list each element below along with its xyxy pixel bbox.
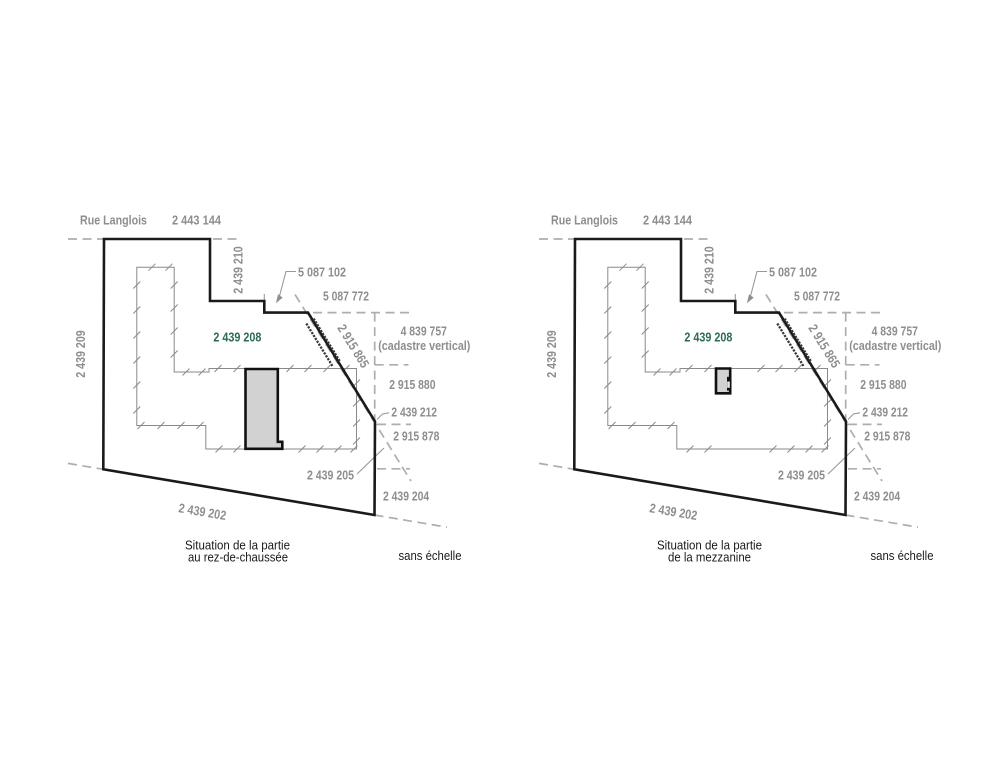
svg-text:5 087 102: 5 087 102 (298, 265, 346, 280)
svg-text:2 439 212: 2 439 212 (862, 405, 908, 420)
svg-text:au rez-de-chaussée: au rez-de-chaussée (188, 551, 288, 565)
svg-text:2 443 144: 2 443 144 (643, 213, 693, 228)
svg-text:Rue Langlois: Rue Langlois (80, 213, 147, 228)
svg-text:2 439 210: 2 439 210 (230, 246, 245, 294)
svg-text:5 087 772: 5 087 772 (323, 289, 369, 304)
svg-text:2 915 878: 2 915 878 (864, 429, 910, 444)
svg-text:2 439 209: 2 439 209 (73, 330, 88, 378)
svg-text:(cadastre vertical): (cadastre vertical) (849, 338, 941, 353)
svg-text:2 439 205: 2 439 205 (307, 468, 354, 483)
svg-text:2 443 144: 2 443 144 (172, 213, 222, 228)
svg-text:4 839 757: 4 839 757 (401, 323, 447, 338)
svg-text:(cadastre vertical): (cadastre vertical) (378, 338, 470, 353)
svg-text:2 439 204: 2 439 204 (854, 489, 901, 504)
svg-text:2 439 208: 2 439 208 (213, 330, 261, 345)
svg-text:2 439 209: 2 439 209 (544, 330, 559, 378)
svg-text:5 087 102: 5 087 102 (769, 265, 817, 280)
svg-text:2 915 880: 2 915 880 (389, 377, 435, 392)
svg-text:2 915 880: 2 915 880 (860, 377, 906, 392)
svg-text:2 439 204: 2 439 204 (383, 489, 430, 504)
svg-text:2 439 212: 2 439 212 (391, 405, 437, 420)
svg-text:sans échelle: sans échelle (871, 549, 934, 563)
svg-text:4 839 757: 4 839 757 (872, 323, 918, 338)
svg-text:2 915 878: 2 915 878 (393, 429, 439, 444)
svg-text:5 087 772: 5 087 772 (794, 289, 840, 304)
svg-text:sans échelle: sans échelle (399, 549, 462, 563)
svg-text:2 439 205: 2 439 205 (778, 468, 825, 483)
svg-text:de la mezzanine: de la mezzanine (668, 551, 751, 565)
svg-text:2 439 208: 2 439 208 (684, 330, 732, 345)
svg-text:2 439 210: 2 439 210 (701, 246, 716, 294)
svg-text:Rue Langlois: Rue Langlois (551, 213, 618, 228)
